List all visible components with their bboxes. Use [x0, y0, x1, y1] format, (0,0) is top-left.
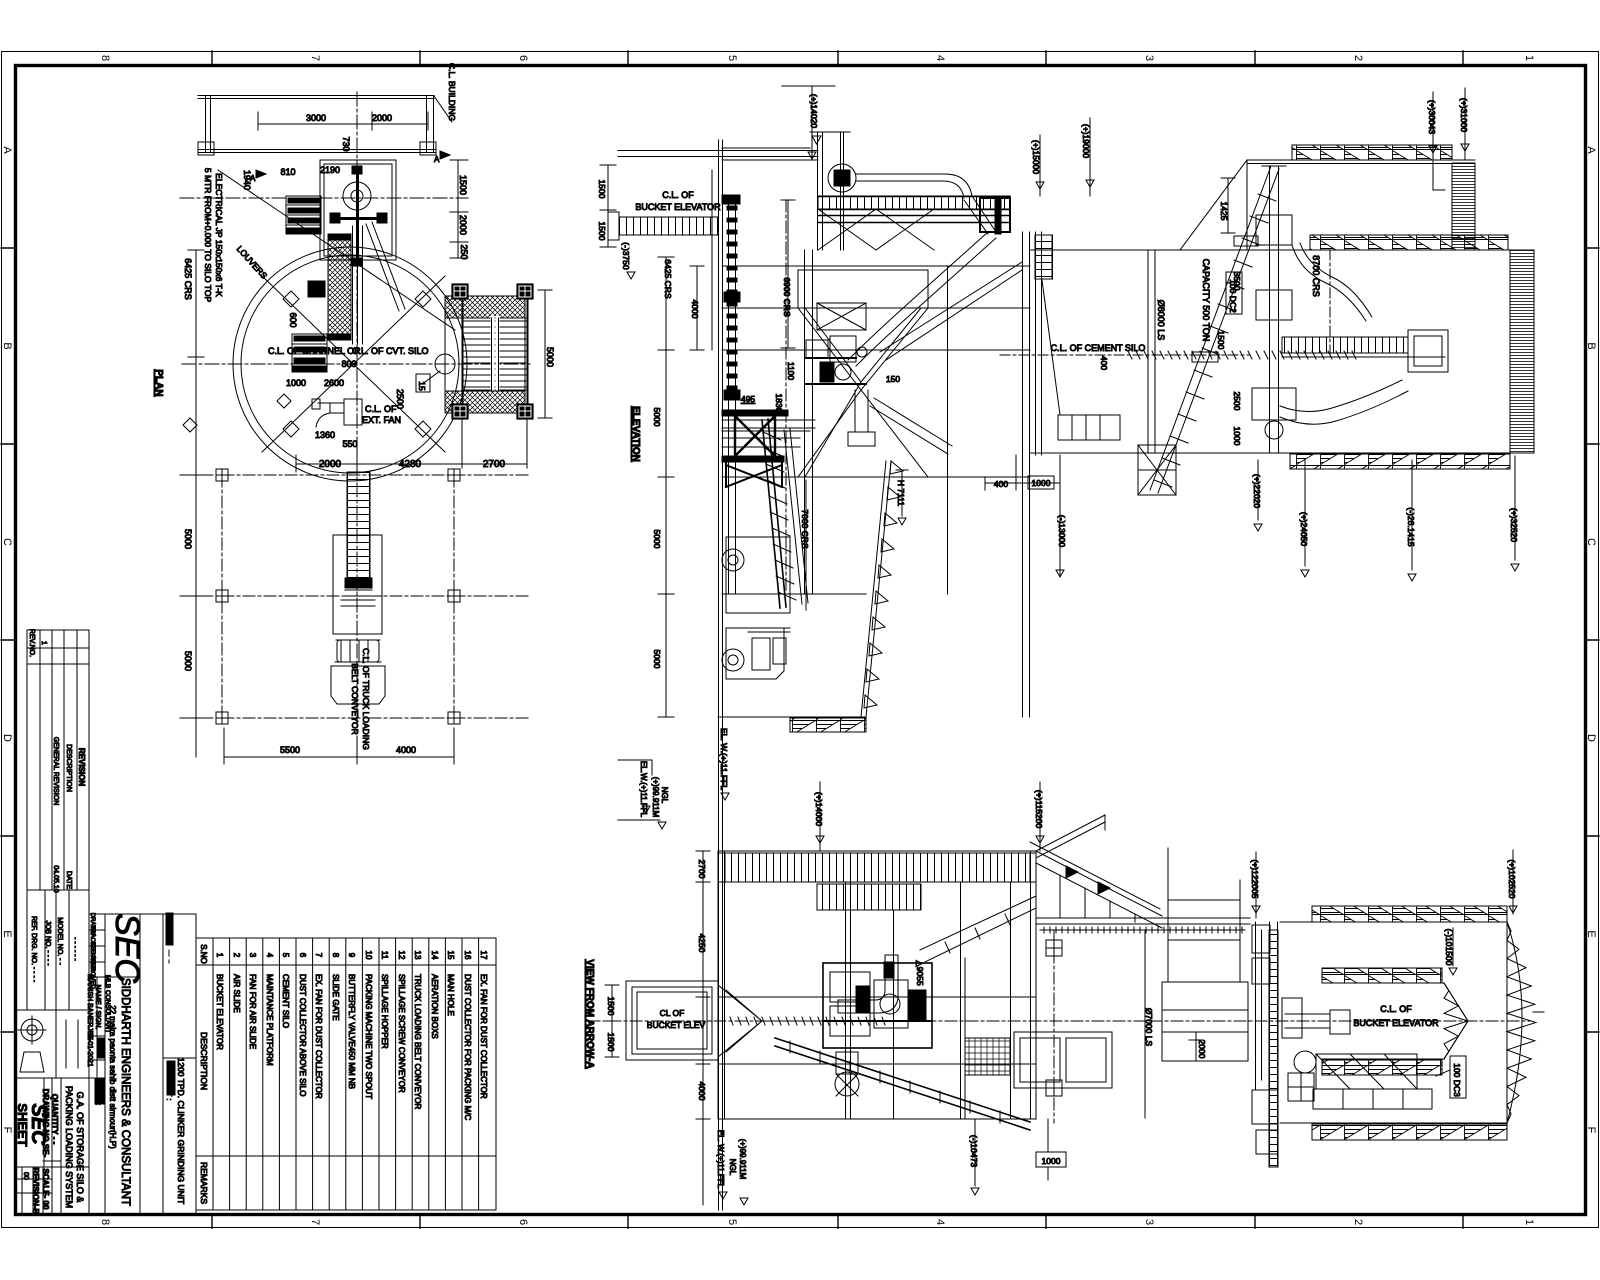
svg-text:CEMENT SILO: CEMENT SILO — [281, 974, 290, 1028]
svg-text:G.A. OF STORAGE SILO &: G.A. OF STORAGE SILO & — [75, 1092, 85, 1203]
svg-text:1000: 1000 — [1232, 427, 1242, 446]
svg-text:BUCKET ELEVATOR: BUCKET ELEVATOR — [1353, 1018, 1439, 1028]
svg-text:11: 11 — [380, 951, 389, 960]
svg-text:16: 16 — [463, 951, 472, 960]
svg-text:MAN HOLE: MAN HOLE — [446, 974, 455, 1016]
svg-text:TRUCK LOADING BELT CONVEYOR: TRUCK LOADING BELT CONVEYOR — [413, 974, 422, 1110]
svg-text:EL. W.(+)11.FFL: EL. W.(+)11.FFL — [719, 728, 729, 790]
svg-text:C.L. OF: C.L. OF — [662, 190, 694, 200]
svg-text:S.NO: S.NO — [199, 944, 208, 964]
svg-text:EX. FAN FOR DUST COLLECTOR: EX. FAN FOR DUST COLLECTOR — [314, 974, 323, 1099]
svg-text:6425 CRS: 6425 CRS — [183, 258, 193, 300]
svg-text:SPILLAGE SCREW CONVEYOR: SPILLAGE SCREW CONVEYOR — [397, 974, 406, 1093]
svg-text:REVISION-B: REVISION-B — [31, 1168, 40, 1215]
svg-text:00: 00 — [22, 1172, 29, 1180]
svg-text:C.L. OF CHANNEL OR: C.L. OF CHANNEL OR — [268, 346, 361, 356]
svg-text:(+)24050: (+)24050 — [1299, 512, 1309, 547]
svg-text:04.05.10: 04.05.10 — [52, 865, 59, 892]
svg-text:(-)13000: (-)13000 — [1057, 515, 1067, 547]
svg-text:550: 550 — [342, 439, 357, 449]
svg-text:CL OF: CL OF — [660, 1008, 685, 1018]
svg-text:MLB CONSULTANT: MLB CONSULTANT — [104, 975, 111, 1033]
svg-text:(+)15000: (+)15000 — [1031, 140, 1041, 175]
svg-text:DRAWING NO.SE-: DRAWING NO.SE- — [41, 1089, 50, 1158]
svg-text:LOUVERS: LOUVERS — [235, 244, 270, 281]
svg-text:C.L. OF: C.L. OF — [1380, 1004, 1412, 1014]
svg-text:400: 400 — [1099, 356, 1109, 370]
svg-text:DUST COLLECTOR FOR PACKING M/C: DUST COLLECTOR FOR PACKING M/C — [463, 974, 472, 1120]
svg-text:7: 7 — [309, 55, 321, 61]
svg-text:APPROVED: APPROVED — [89, 955, 95, 989]
svg-text:10: 10 — [364, 951, 373, 960]
svg-text:BUCKET ELEVATOR: BUCKET ELEVATOR — [215, 974, 224, 1050]
svg-text:PROJECT :: PROJECT : — [165, 1061, 174, 1100]
svg-text:2000: 2000 — [372, 113, 392, 123]
svg-text:15: 15 — [446, 951, 455, 960]
svg-text:(-)101500: (-)101500 — [1444, 929, 1454, 966]
svg-text:REV.NO.: REV.NO. — [28, 629, 35, 657]
svg-text:EXT. FAN: EXT. FAN — [362, 415, 401, 425]
svg-text:(+)115200: (+)115200 — [1034, 790, 1044, 829]
svg-text:ELECTRICAL JP 150x150x6 T-K: ELECTRICAL JP 150x150x6 T-K — [214, 173, 224, 297]
svg-text:REF. DRG. NO. - - - -: REF. DRG. NO. - - - - — [30, 916, 37, 983]
svg-text:MAINTANCE PLATFORM: MAINTANCE PLATFORM — [265, 974, 274, 1066]
svg-text:1500: 1500 — [1216, 331, 1226, 350]
svg-text:4280: 4280 — [399, 459, 422, 470]
svg-text:4: 4 — [934, 1219, 946, 1225]
svg-text:2000: 2000 — [458, 215, 468, 235]
svg-text:730: 730 — [341, 136, 351, 151]
svg-text:C.L. OF: C.L. OF — [365, 404, 397, 414]
svg-text:PACKING LOADING SYSTEM: PACKING LOADING SYSTEM — [64, 1086, 74, 1208]
svg-text:NGL: NGL — [728, 1159, 737, 1176]
svg-text:F: F — [1585, 1127, 1597, 1134]
svg-text:1000: 1000 — [1032, 478, 1051, 488]
svg-text:E: E — [1585, 930, 1597, 937]
svg-text:1: 1 — [1523, 55, 1535, 61]
svg-text:9: 9 — [347, 953, 356, 958]
svg-text:1500: 1500 — [606, 1033, 616, 1052]
svg-text:BUCKET ELEVATOR: BUCKET ELEVATOR — [635, 202, 721, 212]
svg-text:1500: 1500 — [606, 997, 616, 1016]
svg-text:4: 4 — [265, 953, 274, 958]
svg-text:3000: 3000 — [306, 113, 326, 123]
svg-text:2: 2 — [1352, 1219, 1364, 1225]
svg-text:1: 1 — [40, 641, 47, 645]
svg-text:SPILLAGE HOPPER: SPILLAGE HOPPER — [380, 974, 389, 1049]
svg-text:7: 7 — [314, 953, 323, 958]
svg-text:(+)19000: (+)19000 — [1081, 124, 1091, 159]
svg-text:- - - - - -: - - - - - - — [71, 937, 78, 961]
svg-text:(+)32520: (+)32520 — [1509, 508, 1519, 543]
svg-text:3: 3 — [248, 953, 257, 958]
svg-text:BUTTERFLY VALVE450 MM NB: BUTTERFLY VALVE450 MM NB — [347, 974, 356, 1089]
svg-text:6: 6 — [517, 55, 529, 61]
svg-text:5000: 5000 — [652, 650, 662, 669]
svg-text:B: B — [1, 342, 13, 349]
svg-text:(-)26.1415: (-)26.1415 — [1406, 507, 1416, 546]
svg-text:D: D — [1, 734, 13, 742]
svg-text:FAN FOR AIR SLIDE: FAN FOR AIR SLIDE — [248, 974, 257, 1049]
svg-text:8700 CRS: 8700 CRS — [1311, 255, 1321, 297]
svg-text:13: 13 — [413, 951, 422, 960]
svg-text:12: 12 — [397, 951, 406, 960]
svg-text:F: F — [1, 1127, 13, 1134]
svg-text:DATE: DATE — [95, 1040, 102, 1058]
svg-text:DESCRIPTION: DESCRIPTION — [199, 1032, 209, 1090]
svg-text:5: 5 — [281, 953, 290, 958]
svg-text:2700: 2700 — [697, 860, 707, 879]
svg-text:EX. FAN FOR DUST COLLECTOR: EX. FAN FOR DUST COLLECTOR — [479, 974, 488, 1099]
svg-text:△9055: △9055 — [915, 960, 925, 986]
svg-text:400: 400 — [994, 479, 1008, 489]
svg-text:PLAN: PLAN — [153, 369, 164, 396]
svg-text:REMARKS: REMARKS — [199, 1162, 209, 1204]
svg-text:SLIDE GATE: SLIDE GATE — [331, 974, 340, 1021]
svg-text:JOB NO. - - - -: JOB NO. - - - - — [44, 920, 51, 966]
svg-text:2: 2 — [1352, 55, 1364, 61]
svg-text:1360: 1360 — [315, 430, 335, 440]
svg-text:2190: 2190 — [320, 165, 340, 175]
svg-text:2000: 2000 — [1197, 1040, 1207, 1059]
svg-text:6900 CRS: 6900 CRS — [782, 277, 792, 317]
svg-text:CAPACITY 500 TON: CAPACITY 500 TON — [1201, 259, 1211, 342]
svg-text:C.L. BUILDING: C.L. BUILDING — [447, 63, 457, 121]
svg-text:(+)30043: (+)30043 — [1427, 100, 1437, 135]
svg-text:8: 8 — [99, 55, 111, 61]
svg-text:5000: 5000 — [652, 408, 662, 427]
svg-text:DUST COLLECTOR ABOVE SILO: DUST COLLECTOR ABOVE SILO — [298, 974, 307, 1096]
svg-text:AIR SLIDE: AIR SLIDE — [232, 974, 241, 1013]
svg-text:Ø7000 LS: Ø7000 LS — [1144, 1008, 1154, 1047]
svg-text:8: 8 — [331, 953, 340, 958]
svg-text:1: 1 — [215, 953, 224, 958]
svg-text:250: 250 — [459, 244, 469, 259]
svg-text:C: C — [1585, 538, 1597, 546]
svg-text:5000: 5000 — [545, 347, 555, 367]
svg-text:MODEL NO. - -: MODEL NO. - - — [56, 917, 63, 965]
svg-text:1500: 1500 — [597, 222, 607, 241]
svg-text:C.L. OF CEMENT SILO: C.L. OF CEMENT SILO — [1051, 343, 1146, 353]
svg-text:C: C — [1, 538, 13, 546]
svg-text:SEC: SEC — [108, 913, 146, 983]
svg-text:2700: 2700 — [483, 459, 506, 470]
svg-text:NGL: NGL — [660, 787, 669, 804]
svg-text:H 7111: H 7111 — [896, 480, 906, 506]
svg-text:TITLE :: TITLE : — [94, 1081, 103, 1106]
svg-text:4000: 4000 — [697, 1082, 707, 1101]
svg-text:1: 1 — [1523, 1219, 1535, 1225]
svg-text:810: 810 — [280, 167, 295, 177]
svg-text:5000: 5000 — [652, 530, 662, 549]
svg-text:1500: 1500 — [458, 175, 468, 195]
svg-text:GENERAL REVISION: GENERAL REVISION — [52, 737, 59, 806]
svg-text:SCALE- 00: SCALE- 00 — [41, 1169, 50, 1210]
svg-text:1100: 1100 — [786, 362, 796, 381]
svg-text:DESCRIPTION: DESCRIPTION — [65, 744, 72, 792]
svg-text:4000: 4000 — [690, 300, 700, 319]
svg-text:2: 2 — [232, 953, 241, 958]
svg-text:1200 TPD. CLINKER GRINDING UNI: 1200 TPD. CLINKER GRINDING UNIT — [176, 1058, 186, 1205]
svg-text:04-01-2021: 04-01-2021 — [86, 1031, 93, 1067]
svg-text:3500: 3500 — [1232, 272, 1242, 291]
svg-text:17: 17 — [479, 951, 488, 960]
svg-text:EL. W.(+)11.FFL: EL. W.(+)11.FFL — [716, 1130, 725, 1189]
svg-text:4000: 4000 — [396, 745, 416, 755]
svg-text:15: 15 — [417, 381, 427, 391]
svg-text:2600: 2600 — [324, 378, 344, 388]
svg-text:5500: 5500 — [280, 745, 300, 755]
svg-text:4250: 4250 — [697, 934, 707, 953]
svg-text:VIEW FROM ARROW-A: VIEW FROM ARROW-A — [584, 959, 595, 1068]
svg-text:D: D — [1585, 734, 1597, 742]
svg-text:AERATION BOXS: AERATION BOXS — [430, 974, 439, 1039]
svg-text:14: 14 — [430, 951, 439, 960]
svg-text:6: 6 — [517, 1219, 529, 1225]
svg-text:Ø8000 LS: Ø8000 LS — [1156, 300, 1166, 341]
svg-text:5 MTR FROM+0.000 TO SILO TOP: 5 MTR FROM+0.000 TO SILO TOP — [203, 168, 213, 303]
svg-text:DATE: DATE — [65, 871, 72, 889]
svg-text:ELEVATION: ELEVATION — [630, 406, 641, 462]
svg-text:REVISION: REVISION — [77, 748, 86, 786]
svg-text:495: 495 — [741, 394, 755, 404]
svg-text:6425 CRS: 6425 CRS — [663, 259, 673, 299]
svg-text:A: A — [1, 146, 13, 154]
svg-text:(+)99.911M: (+)99.911M — [651, 777, 660, 818]
svg-text:5000: 5000 — [183, 651, 193, 671]
svg-text:8: 8 — [99, 1219, 111, 1225]
svg-text:5: 5 — [726, 1219, 738, 1225]
svg-text:2500: 2500 — [1232, 392, 1242, 411]
svg-text:1500: 1500 — [597, 180, 607, 199]
svg-text:QUANTITY - -: QUANTITY - - — [50, 1094, 59, 1145]
svg-text:(-)10473: (-)10473 — [969, 1135, 979, 1167]
svg-text:1000: 1000 — [286, 378, 306, 388]
svg-text:600: 600 — [288, 312, 298, 327]
svg-text:(+)22020: (+)22020 — [1252, 474, 1262, 509]
svg-text:(+)102520: (+)102520 — [1507, 860, 1517, 899]
svg-text:PACKING MACHINE TWO SPOUT: PACKING MACHINE TWO SPOUT — [364, 974, 373, 1099]
svg-text:B: B — [1585, 342, 1597, 349]
svg-text:A: A — [434, 155, 440, 164]
svg-text:800: 800 — [341, 359, 356, 369]
svg-text:(+)99.911M: (+)99.911M — [738, 1139, 747, 1180]
svg-text:(+)14020: (+)14020 — [809, 94, 819, 129]
svg-text:7: 7 — [309, 1219, 321, 1225]
svg-text:BELT CONVEYOR: BELT CONVEYOR — [350, 663, 360, 734]
svg-text:1425: 1425 — [1219, 202, 1229, 221]
svg-text:(+)14000: (+)14000 — [814, 792, 824, 827]
svg-text:3: 3 — [1143, 55, 1155, 61]
svg-text:(+)122005: (+)122005 — [1250, 860, 1260, 899]
svg-text:C.L. OF CVT. SILO: C.L. OF CVT. SILO — [352, 346, 429, 356]
svg-text:100 DC3: 100 DC3 — [1452, 1063, 1462, 1097]
svg-text:E: E — [1, 930, 13, 937]
svg-text:1000: 1000 — [1042, 1156, 1061, 1166]
svg-text:2000: 2000 — [319, 459, 342, 470]
svg-text:4: 4 — [934, 55, 946, 61]
svg-text:5: 5 — [726, 55, 738, 61]
svg-text:5000: 5000 — [183, 529, 193, 549]
svg-text:150: 150 — [886, 374, 900, 384]
svg-text:3: 3 — [1143, 1219, 1155, 1225]
svg-text:SHEET: SHEET — [15, 1103, 30, 1146]
svg-text:C.L. OF TRUCK LOADING: C.L. OF TRUCK LOADING — [361, 648, 371, 750]
svg-text:(+)31000: (+)31000 — [1459, 98, 1469, 133]
svg-text:NAME / SIGN.: NAME / SIGN. — [94, 984, 101, 1029]
svg-text:7000 CRS: 7000 CRS — [800, 509, 810, 549]
svg-text:A: A — [1585, 146, 1597, 154]
svg-text:6: 6 — [298, 953, 307, 958]
svg-text:BUCKET ELEV: BUCKET ELEV — [647, 1020, 706, 1030]
svg-text:(-)3750: (-)3750 — [621, 242, 631, 270]
